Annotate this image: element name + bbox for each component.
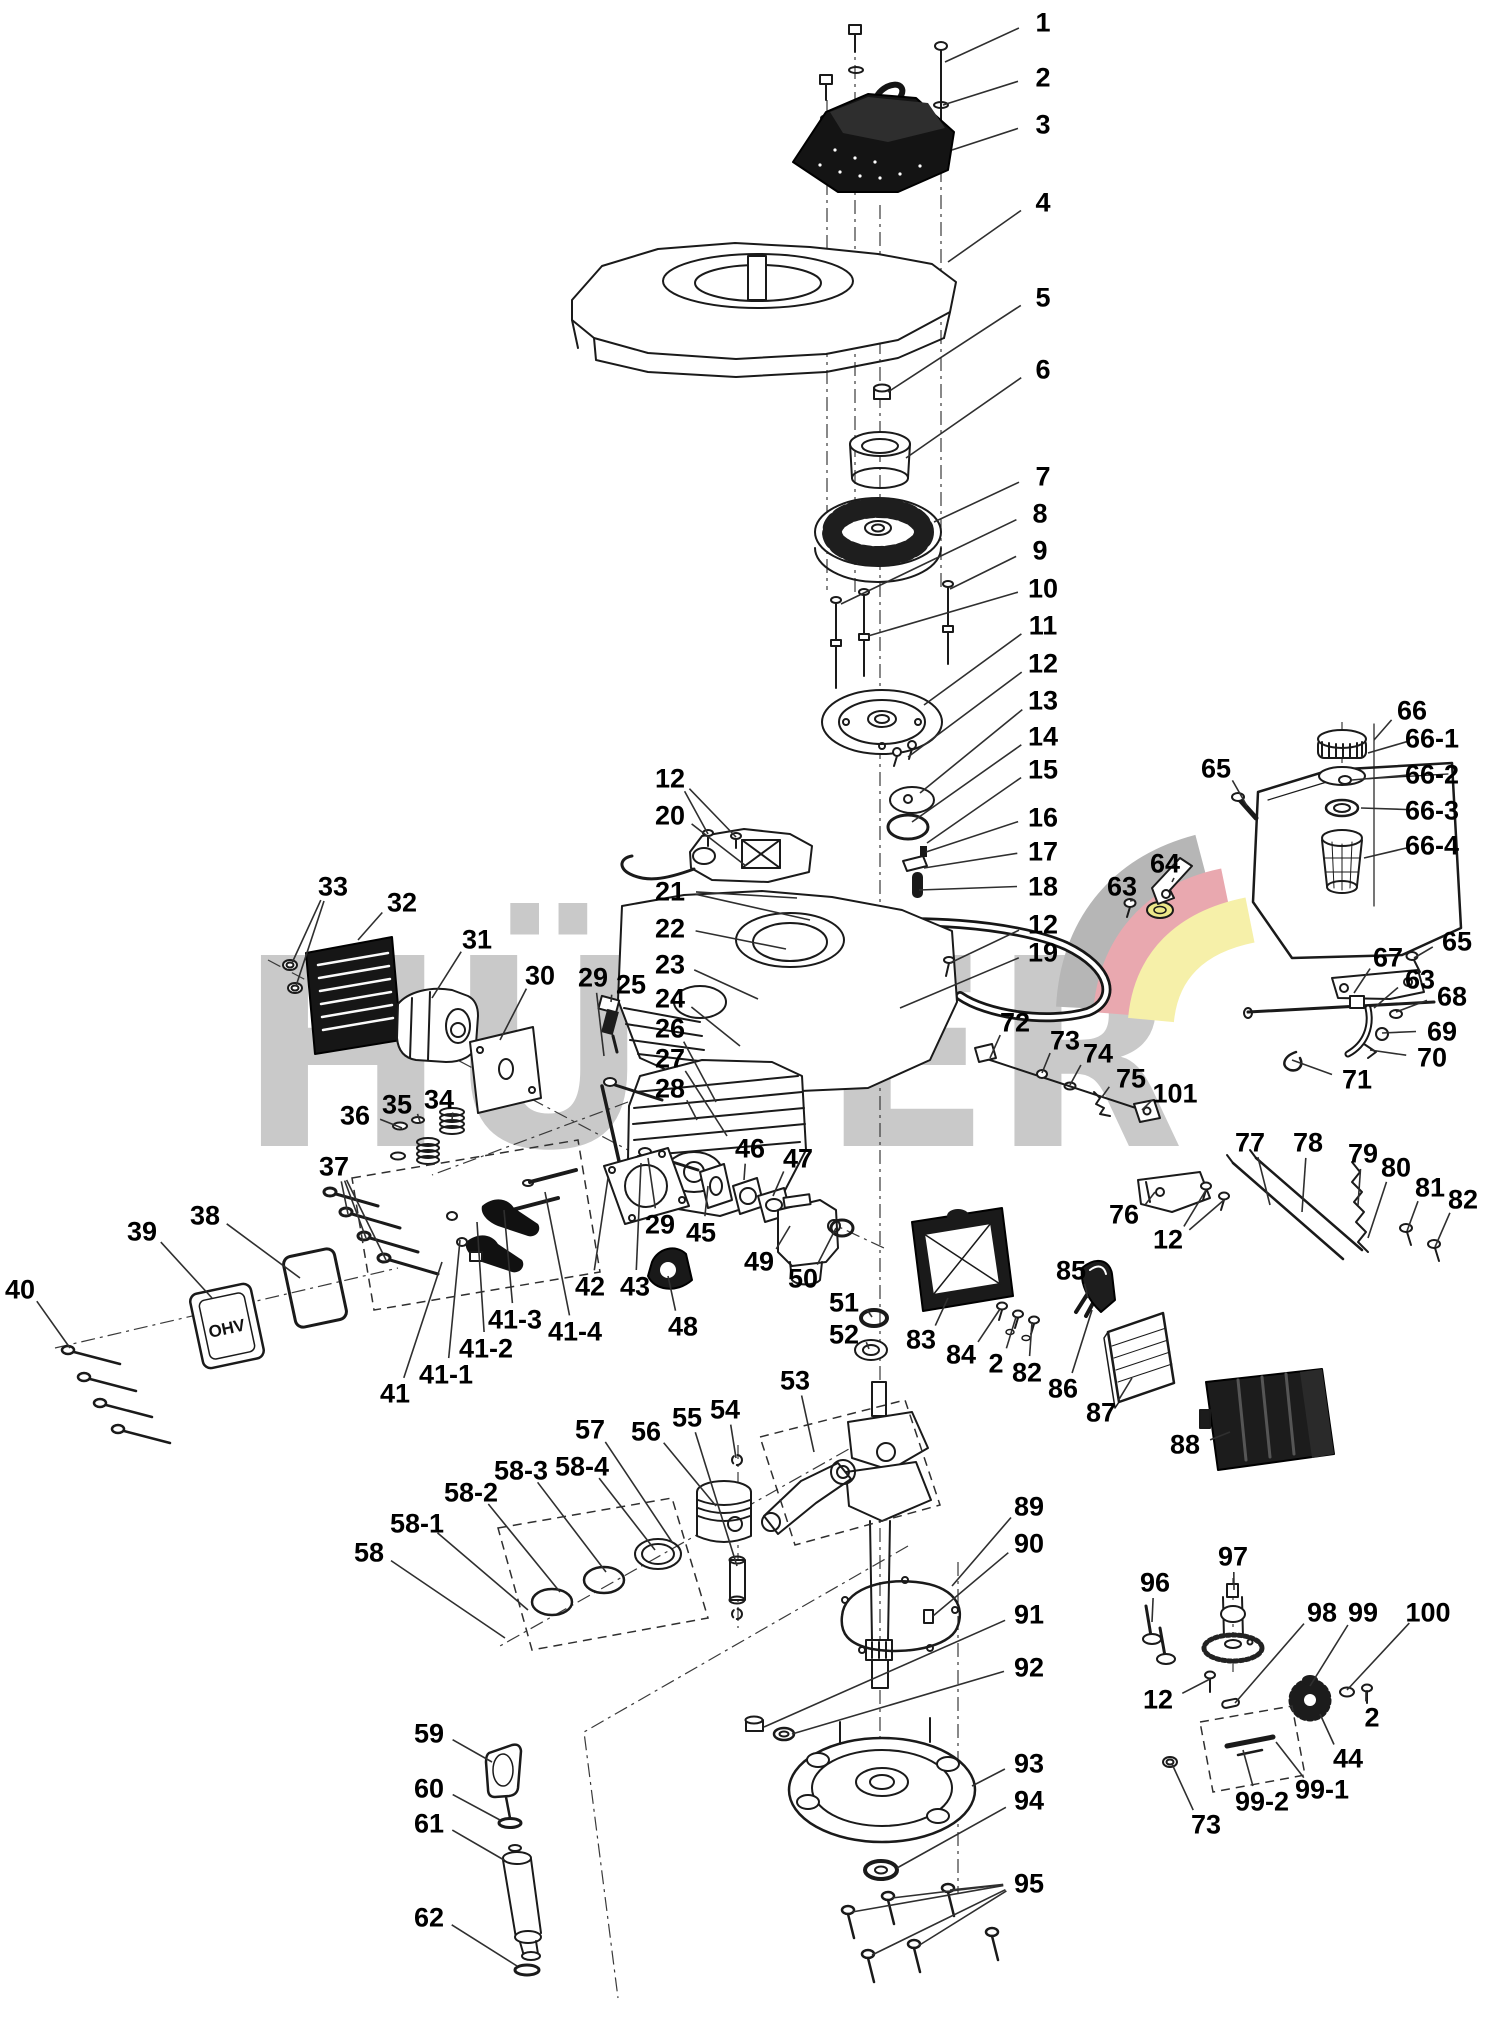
leader-line-99-2	[1243, 1750, 1253, 1786]
part-label-66: 66	[1397, 696, 1427, 726]
leader-line-25	[611, 995, 612, 1002]
part-label-64: 64	[1150, 849, 1180, 879]
part-label-92: 92	[1014, 1653, 1044, 1683]
leader-line-61	[452, 1830, 504, 1860]
cover-bolts	[62, 1346, 170, 1443]
part-label-8: 8	[1032, 499, 1047, 529]
part-label-23: 23	[655, 950, 685, 980]
part-label-11: 11	[1029, 611, 1058, 641]
part-label-5: 5	[1035, 283, 1050, 313]
leader-line-1	[945, 28, 1019, 62]
part-label-58-4: 58-4	[555, 1452, 609, 1482]
part-label-66-4: 66-4	[1405, 831, 1459, 861]
part-label-53: 53	[780, 1366, 810, 1396]
part-label-40: 40	[5, 1275, 35, 1305]
leader-line-17	[924, 853, 1017, 868]
leader-line-92	[792, 1671, 1004, 1734]
leader-line-57	[605, 1442, 672, 1542]
part-label-65: 65	[1442, 927, 1472, 957]
part-label-37: 37	[319, 1152, 349, 1182]
part-label-47: 47	[783, 1144, 813, 1174]
part-label-82: 82	[1012, 1358, 1042, 1388]
leader-line-59	[453, 1740, 492, 1762]
part-label-66-1: 66-1	[1405, 724, 1459, 754]
part-label-41-4: 41-4	[548, 1317, 602, 1347]
part-label-86: 86	[1048, 1374, 1078, 1404]
part-label-59: 59	[414, 1719, 444, 1749]
part-label-35: 35	[382, 1090, 412, 1120]
part-label-42: 42	[575, 1272, 605, 1302]
part-label-94: 94	[1014, 1786, 1044, 1816]
part-label-89: 89	[1014, 1492, 1044, 1522]
part-label-18: 18	[1028, 872, 1058, 902]
leader-line-4	[948, 211, 1021, 263]
leader-line-91	[764, 1620, 1005, 1727]
leader-line-44	[1320, 1714, 1334, 1745]
part-label-54: 54	[710, 1395, 740, 1425]
leader-line-58-4	[599, 1478, 655, 1550]
leader-line-71	[1292, 1060, 1332, 1075]
muffler	[397, 989, 478, 1062]
leader-line-40	[37, 1301, 70, 1348]
camshaft	[1204, 1584, 1262, 1661]
part-label-48: 48	[668, 1312, 698, 1342]
part-label-99: 99	[1348, 1598, 1378, 1628]
leader-line-60	[453, 1795, 500, 1820]
part-label-10: 10	[1028, 574, 1058, 604]
part-label-56: 56	[631, 1417, 661, 1447]
part-label-16: 16	[1028, 803, 1058, 833]
part-label-65: 65	[1201, 754, 1231, 784]
drain-bolt	[746, 1717, 795, 1741]
flywheel-fan	[815, 498, 941, 582]
part-label-41-2: 41-2	[459, 1334, 513, 1364]
leader-line-80	[1368, 1182, 1387, 1238]
part-label-43: 43	[620, 1272, 650, 1302]
part-label-84: 84	[946, 1340, 976, 1370]
part-label-72: 72	[1000, 1008, 1030, 1038]
part-label-58: 58	[354, 1538, 384, 1568]
part-label-99-1: 99-1	[1295, 1775, 1349, 1805]
part-label-90: 90	[1014, 1529, 1044, 1559]
part-label-58-3: 58-3	[494, 1456, 548, 1486]
part-label-1: 1	[1035, 8, 1050, 38]
leader-line-62	[452, 1925, 517, 1966]
part-label-85: 85	[1056, 1256, 1086, 1286]
leader-line-39	[161, 1242, 212, 1298]
part-label-66-3: 66-3	[1405, 796, 1459, 826]
part-label-38: 38	[190, 1201, 220, 1231]
cylinder-studs	[831, 581, 953, 688]
crankshaft	[846, 1382, 931, 1688]
part-label-75: 75	[1116, 1064, 1146, 1094]
yellow-washer	[1147, 902, 1173, 918]
part-label-73: 73	[1050, 1026, 1080, 1056]
part-label-73: 73	[1191, 1810, 1221, 1840]
fan-housing	[572, 243, 956, 377]
leader-line-41-4	[545, 1192, 570, 1315]
starter-mesh-cover	[793, 80, 954, 192]
part-label-12: 12	[1143, 1685, 1173, 1715]
part-label-24: 24	[655, 984, 685, 1014]
leader-line-96	[1152, 1598, 1153, 1622]
part-label-32: 32	[387, 888, 417, 918]
part-label-77: 77	[1235, 1128, 1265, 1158]
muffler-gasket	[470, 1027, 541, 1113]
piston-rings	[532, 1539, 681, 1615]
leader-line-16	[926, 822, 1018, 852]
part-label-28: 28	[655, 1074, 685, 1104]
leader-line-12	[1182, 1679, 1210, 1693]
part-label-14: 14	[1028, 722, 1058, 752]
crankcase-cover	[789, 1718, 975, 1842]
part-label-12: 12	[655, 764, 685, 794]
part-label-88: 88	[1170, 1430, 1200, 1460]
leader-line-86	[1072, 1310, 1092, 1373]
part-label-97: 97	[1218, 1542, 1248, 1572]
part-label-29: 29	[645, 1210, 675, 1240]
part-label-95: 95	[1014, 1869, 1044, 1899]
part-label-36: 36	[340, 1101, 370, 1131]
part-label-39: 39	[127, 1217, 157, 1247]
oil-seal	[865, 1861, 897, 1879]
muffler-cover	[306, 937, 401, 1054]
leader-line-100	[1347, 1623, 1409, 1690]
part-label-49: 49	[744, 1247, 774, 1277]
part-label-98: 98	[1307, 1598, 1337, 1628]
part-label-62: 62	[414, 1903, 444, 1933]
part-label-96: 96	[1140, 1568, 1170, 1598]
leader-line-73	[1172, 1764, 1193, 1810]
part-label-2: 2	[1035, 63, 1050, 93]
part-label-52: 52	[829, 1320, 859, 1350]
part-label-41-1: 41-1	[419, 1360, 473, 1390]
part-label-3: 3	[1035, 110, 1050, 140]
leader-line-95	[852, 1886, 1003, 1912]
part-label-13: 13	[1028, 686, 1058, 716]
part-label-101: 101	[1152, 1079, 1197, 1109]
part-label-20: 20	[655, 801, 685, 831]
part-label-25: 25	[616, 970, 646, 1000]
part-label-81: 81	[1415, 1173, 1445, 1203]
part-label-63: 63	[1107, 872, 1137, 902]
part-label-71: 71	[1342, 1065, 1372, 1095]
part-label-58-2: 58-2	[444, 1478, 498, 1508]
piston	[697, 1481, 751, 1542]
part-label-55: 55	[672, 1403, 702, 1433]
part-label-12: 12	[1028, 910, 1058, 940]
part-label-15: 15	[1028, 755, 1058, 785]
part-label-17: 17	[1028, 837, 1058, 867]
part-label-41: 41	[380, 1379, 410, 1409]
part-label-66-2: 66-2	[1405, 760, 1459, 790]
part-label-99-2: 99-2	[1235, 1787, 1289, 1817]
part-label-61: 61	[414, 1809, 444, 1839]
leader-line-82	[1435, 1213, 1450, 1247]
seal-and-bearing	[855, 1310, 887, 1360]
part-label-2: 2	[988, 1349, 1003, 1379]
part-label-60: 60	[414, 1774, 444, 1804]
leader-line-99	[1310, 1625, 1348, 1686]
connecting-rod	[762, 1460, 855, 1534]
leader-line-18	[919, 887, 1017, 891]
breather-parts	[888, 741, 934, 897]
leader-line-15	[927, 778, 1021, 843]
part-label-7: 7	[1035, 462, 1050, 492]
leader-line-11	[924, 634, 1021, 705]
part-label-57: 57	[575, 1415, 605, 1445]
part-label-50: 50	[788, 1264, 818, 1294]
part-label-2: 2	[1364, 1703, 1379, 1733]
part-label-63: 63	[1405, 965, 1435, 995]
part-label-67: 67	[1373, 943, 1403, 973]
part-label-78: 78	[1293, 1128, 1323, 1158]
part-label-93: 93	[1014, 1749, 1044, 1779]
leader-line-54	[731, 1425, 736, 1458]
crankcase-gasket	[842, 1577, 960, 1653]
part-label-82: 82	[1448, 1185, 1478, 1215]
part-label-45: 45	[686, 1218, 716, 1248]
part-label-31: 31	[462, 925, 492, 955]
leader-line-3	[952, 128, 1018, 150]
part-label-87: 87	[1086, 1398, 1116, 1428]
flywheel-nut	[874, 385, 890, 400]
part-label-79: 79	[1348, 1139, 1378, 1169]
part-label-30: 30	[525, 961, 555, 991]
leader-line-93	[972, 1769, 1005, 1786]
part-label-74: 74	[1083, 1039, 1113, 1069]
part-label-27: 27	[655, 1044, 685, 1074]
leader-line-6	[906, 378, 1021, 458]
part-label-21: 21	[655, 877, 685, 907]
leader-line-58	[391, 1561, 505, 1638]
leader-line-14	[912, 745, 1021, 822]
tappets	[1143, 1606, 1175, 1664]
leader-line-66	[1374, 720, 1392, 740]
leader-line-38	[227, 1224, 300, 1278]
part-label-46: 46	[735, 1134, 765, 1164]
valve-cover-gasket	[282, 1247, 348, 1328]
part-label-29: 29	[578, 963, 608, 993]
leader-line-9	[950, 556, 1016, 589]
leader-line-2	[943, 81, 1018, 105]
leader-line-7	[934, 482, 1019, 522]
part-label-33: 33	[318, 872, 348, 902]
part-label-41-3: 41-3	[488, 1305, 542, 1335]
ignition-coil	[622, 829, 812, 882]
part-label-4: 4	[1035, 188, 1050, 218]
part-label-12: 12	[1153, 1225, 1183, 1255]
exploded-parts-diagram: HÜTER	[0, 0, 1495, 2026]
part-label-19: 19	[1028, 938, 1058, 968]
part-label-44: 44	[1333, 1744, 1363, 1774]
leader-line-58-2	[488, 1504, 560, 1592]
part-label-70: 70	[1417, 1043, 1447, 1073]
part-label-26: 26	[655, 1014, 685, 1044]
part-label-51: 51	[829, 1288, 859, 1318]
part-label-83: 83	[906, 1325, 936, 1355]
oil-dipstick	[486, 1745, 541, 1975]
part-label-6: 6	[1035, 355, 1050, 385]
part-label-22: 22	[655, 914, 685, 944]
leader-line-90	[933, 1553, 1008, 1616]
part-label-80: 80	[1381, 1153, 1411, 1183]
part-label-76: 76	[1109, 1200, 1139, 1230]
part-label-9: 9	[1032, 536, 1047, 566]
leader-line-84	[978, 1309, 1000, 1342]
part-label-58-1: 58-1	[390, 1509, 444, 1539]
leader-line-78	[1302, 1158, 1306, 1212]
part-label-68: 68	[1437, 982, 1467, 1012]
part-label-91: 91	[1014, 1600, 1044, 1630]
leader-line-58-3	[538, 1482, 606, 1572]
part-label-100: 100	[1405, 1598, 1450, 1628]
cover-bolt-set	[842, 1884, 998, 1982]
part-label-12: 12	[1028, 649, 1058, 679]
part-label-34: 34	[424, 1085, 454, 1115]
leader-line-58-1	[438, 1533, 529, 1610]
